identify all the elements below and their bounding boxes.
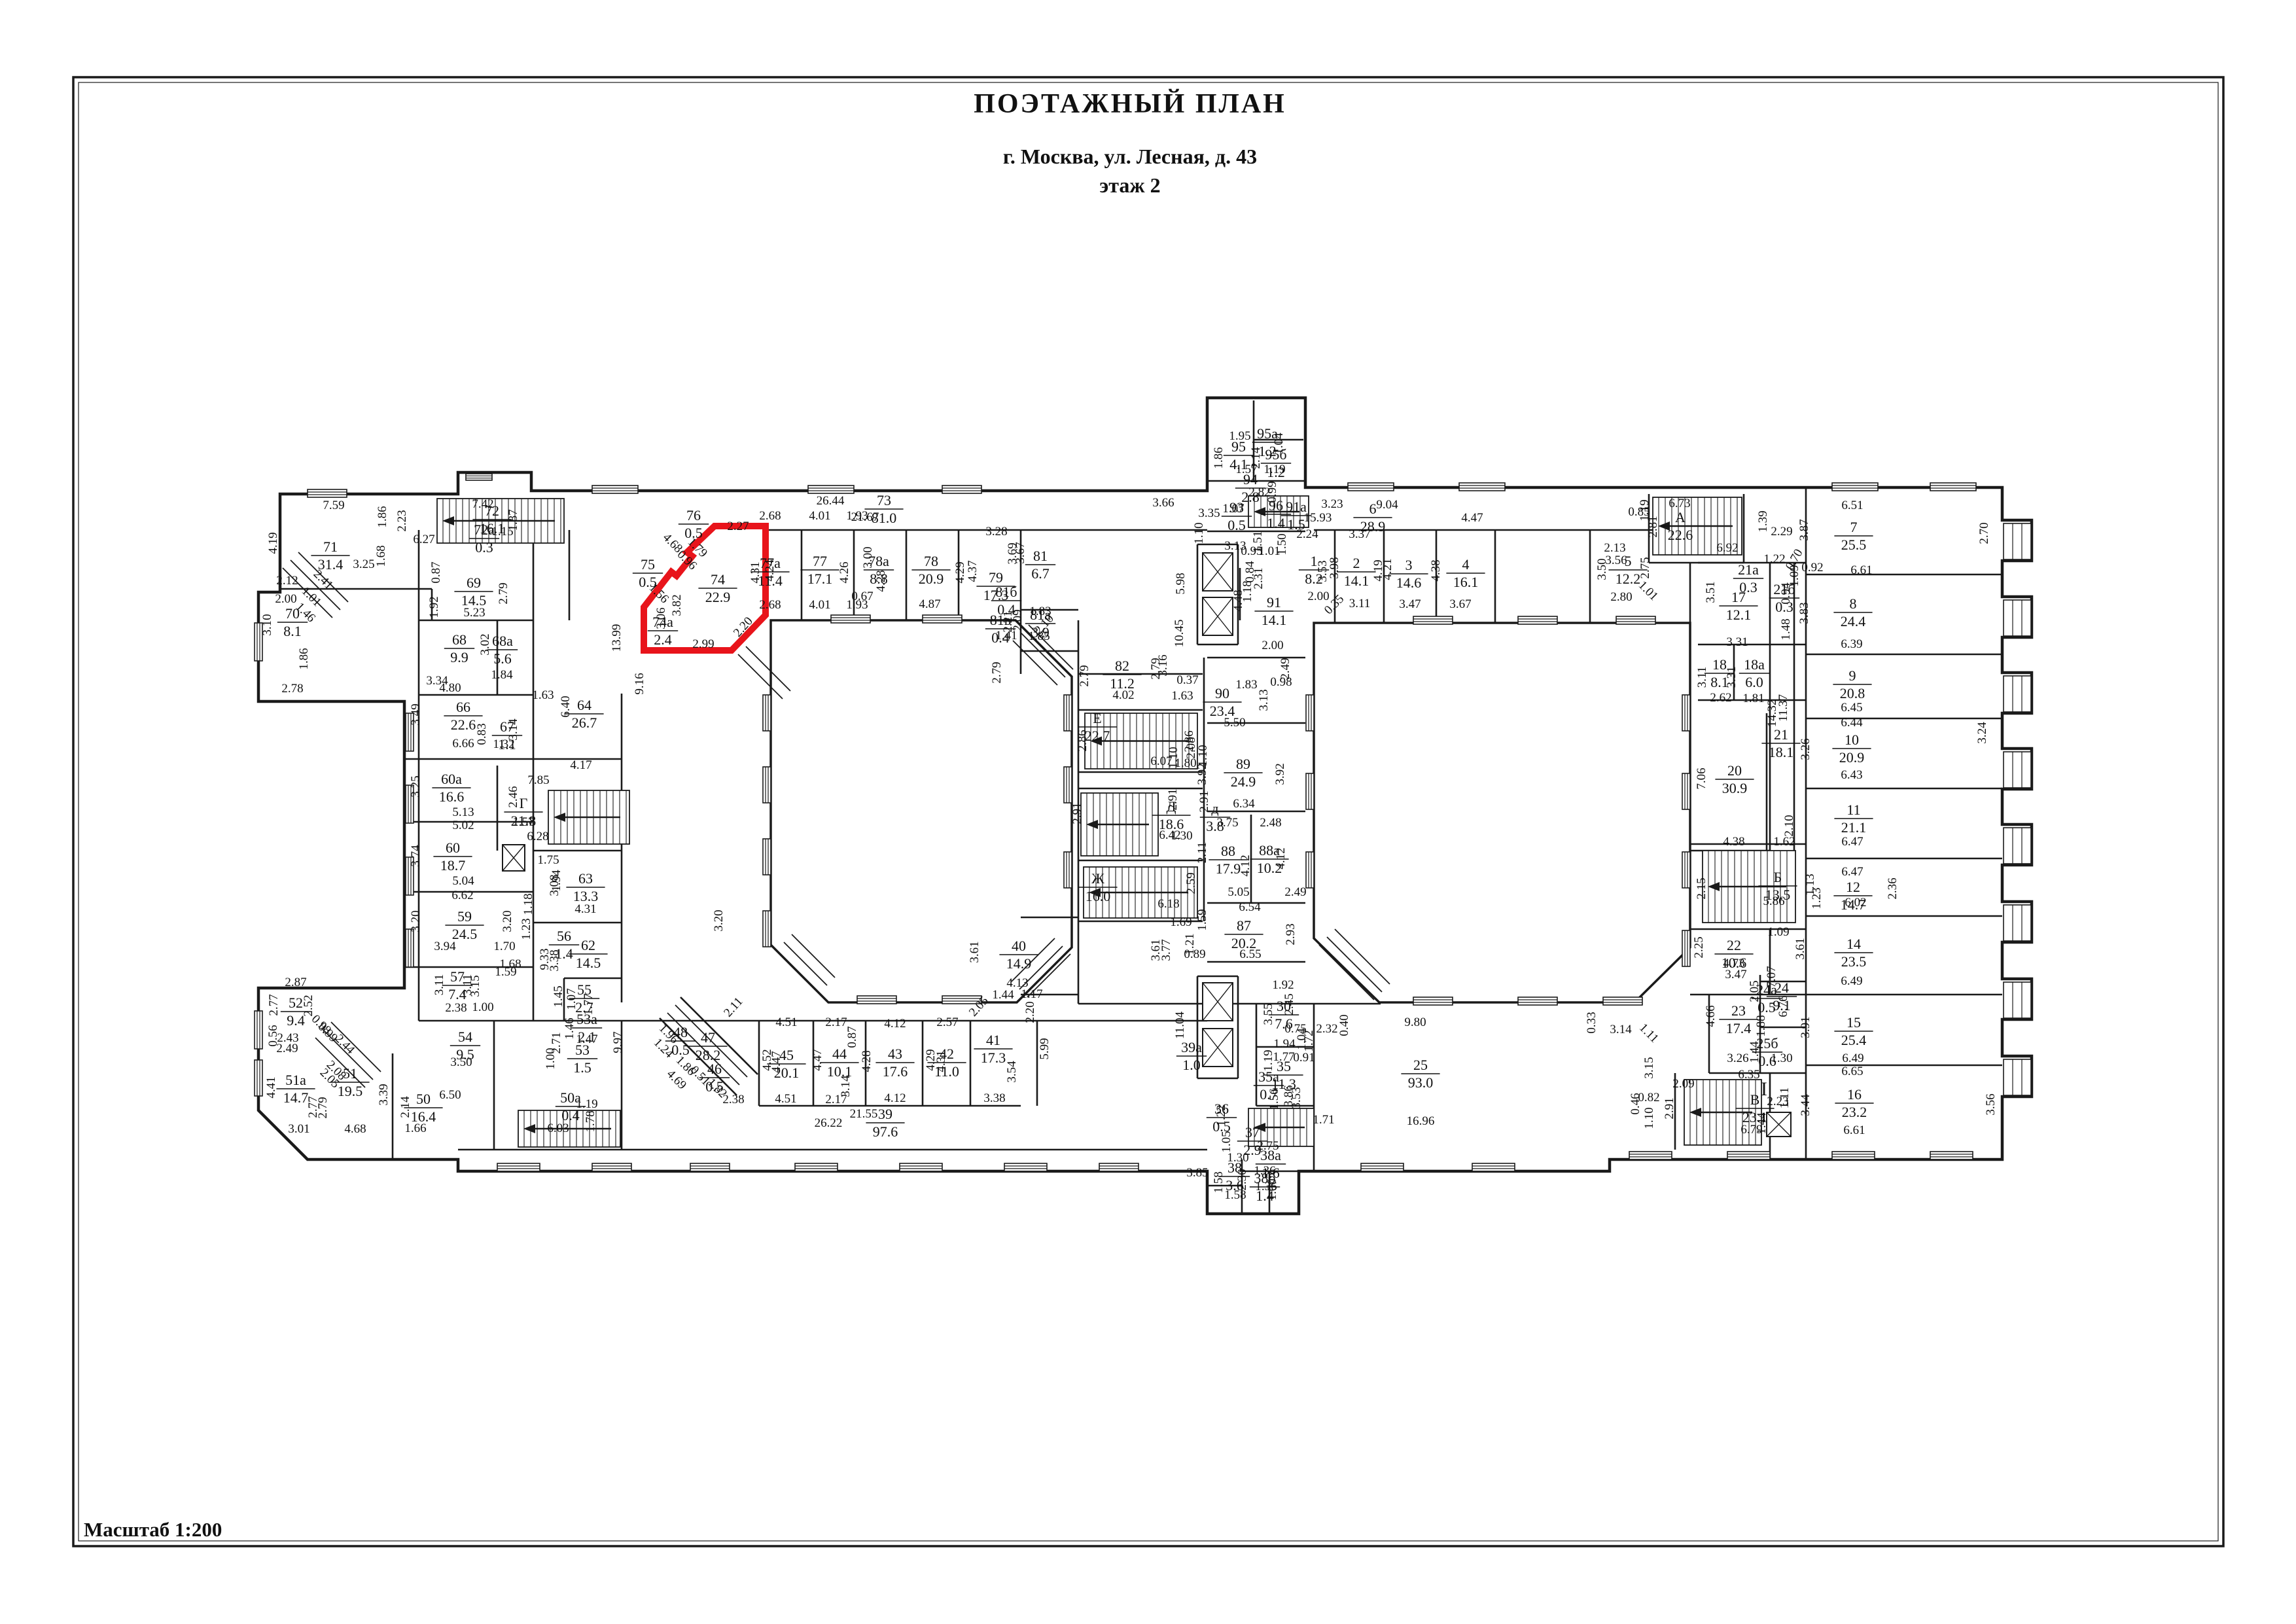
dimension-label: 2.27: [727, 520, 749, 533]
window-icon: [690, 1163, 730, 1171]
window-icon: [1413, 997, 1453, 1005]
dimension-label: 1.94: [1273, 1037, 1296, 1051]
window-icon: [1459, 483, 1505, 491]
elevator-icon: [1203, 1029, 1233, 1067]
svg-text:12: 12: [1846, 879, 1860, 895]
dimension-label: 3.14: [1610, 1023, 1632, 1036]
dimension-label: 3.25: [353, 557, 374, 571]
dimension-label: 6.61: [1843, 1123, 1865, 1137]
svg-text:20.8: 20.8: [1840, 685, 1865, 701]
window-icon: [1518, 616, 1557, 624]
window-icon: [1306, 695, 1314, 731]
svg-text:1.4: 1.4: [1267, 515, 1285, 531]
dimension-label: 3.85: [1186, 1166, 1208, 1180]
dimension-label: 6.49: [1841, 974, 1862, 988]
dimension-label: 1.22: [1214, 1104, 1228, 1126]
dimension-label: 2.52: [302, 995, 315, 1016]
dimension-label: 3.61: [968, 941, 981, 962]
svg-text:25.4: 25.4: [1841, 1032, 1867, 1048]
svg-text:2.4: 2.4: [654, 631, 672, 648]
dimension-label: 3.31: [1725, 666, 1739, 688]
svg-text:23: 23: [1731, 1002, 1746, 1019]
dimension-label: 6.35: [1738, 1068, 1759, 1082]
window-icon: [1727, 1152, 1770, 1159]
dimension-label: 0.89: [1184, 947, 1205, 961]
dimension-label: 3.28: [985, 525, 1007, 538]
dimension-label: 3.61: [1793, 938, 1807, 959]
svg-text:24.9: 24.9: [1231, 773, 1256, 790]
dimension-label: 1.00: [544, 1048, 557, 1069]
dimension-label: 6.79: [1740, 1123, 1762, 1137]
dimension-label: 2.79: [497, 582, 510, 604]
dimension-label: 2.24: [1296, 527, 1318, 541]
dimension-label: 6.27: [413, 533, 434, 546]
dimension-label: 3.87: [1797, 519, 1811, 540]
dimension-label: 1.36: [1254, 1164, 1275, 1178]
dimension-label: 4.26: [838, 561, 851, 583]
dimension-label: 0.46: [1629, 1093, 1642, 1114]
svg-text:20.9: 20.9: [919, 571, 944, 587]
svg-text:56: 56: [557, 928, 571, 944]
svg-text:40: 40: [1012, 938, 1026, 954]
dimension-label: 2.00: [275, 592, 296, 606]
floor-plan-page: ПОЭТАЖНЫЙ ПЛАН г. Москва, ул. Лесная, д.…: [0, 0, 2296, 1624]
dimension-label: 2.36: [1886, 877, 1899, 899]
window-icon: [255, 1060, 262, 1096]
dimension-label: 1.10: [1196, 745, 1210, 766]
elevator-icon: [503, 845, 525, 871]
window-icon: [1682, 695, 1690, 731]
elevator-icon: [1203, 553, 1233, 591]
dimension-label: 4.12: [1274, 847, 1288, 869]
dimension-label: 3.31: [1726, 635, 1748, 649]
dimension-label: 4.17: [570, 758, 592, 772]
dimension-label: 4.24: [763, 559, 777, 582]
svg-text:2: 2: [1353, 555, 1360, 571]
dimension-label: 6.47: [1841, 865, 1863, 879]
window-icon: [923, 615, 962, 623]
svg-text:4: 4: [1462, 556, 1470, 573]
dimension-label: 3.11: [433, 974, 446, 996]
dimension-label: 6.73: [1669, 497, 1690, 510]
dimension-label: 1.44: [992, 988, 1014, 1002]
svg-text:22: 22: [1727, 937, 1741, 953]
window-icon: [1682, 852, 1690, 888]
dimension-label: 3.50: [450, 1055, 472, 1069]
svg-text:17.4: 17.4: [1726, 1020, 1752, 1036]
dimension-label: 3.54: [1005, 1061, 1019, 1083]
svg-text:47: 47: [701, 1029, 715, 1046]
window-icon: [857, 996, 896, 1004]
svg-text:14.1: 14.1: [1262, 612, 1287, 628]
dimension-label: 6.43: [1841, 768, 1862, 782]
dimension-label: 2.93: [1284, 923, 1298, 945]
dimension-label: 3.47: [1725, 968, 1746, 981]
dimension-label: 1.59: [495, 965, 516, 979]
dimension-label: 3.75: [1216, 816, 1238, 830]
dimension-label: 1.57: [1235, 463, 1257, 476]
svg-text:9.9: 9.9: [450, 649, 468, 665]
svg-text:81: 81: [1033, 548, 1048, 564]
dimension-label: 26.22: [815, 1116, 843, 1130]
dimension-label: 2.45: [1282, 993, 1296, 1015]
dimension-label: 1.77: [1273, 1050, 1294, 1064]
dimension-label: 3.02: [478, 633, 492, 655]
svg-text:78: 78: [924, 553, 938, 569]
dimension-label: 9.97: [611, 1031, 625, 1053]
dimension-label: 4.21: [1381, 558, 1394, 580]
svg-text:10: 10: [1845, 732, 1859, 748]
svg-text:82: 82: [1115, 658, 1129, 674]
dimension-label: 1.30: [1771, 1051, 1792, 1065]
dimension-label: 7.59: [323, 499, 344, 512]
dimension-label: 1.11: [1778, 1087, 1792, 1109]
svg-text:17.1: 17.1: [807, 571, 833, 587]
dimension-label: 0.99: [1265, 481, 1279, 503]
svg-text:3: 3: [1405, 557, 1413, 573]
dimension-label: 2.78: [281, 682, 303, 696]
dimension-label: 3.39: [377, 1084, 391, 1105]
svg-text:39а: 39а: [1181, 1039, 1202, 1055]
svg-text:17.3: 17.3: [981, 1050, 1006, 1066]
page-address: г. Москва, ул. Лесная, д. 43: [1003, 145, 1257, 168]
dimension-label: 0.94: [1779, 582, 1793, 605]
svg-text:14.1: 14.1: [1344, 573, 1369, 589]
dimension-label: 2.17: [825, 1015, 847, 1029]
svg-text:44: 44: [832, 1046, 847, 1062]
dimension-label: 4.01: [809, 598, 830, 612]
dimension-label: 3.08: [548, 874, 561, 896]
svg-text:77: 77: [813, 553, 827, 569]
dimension-label: 1.22: [1763, 552, 1785, 566]
dimension-label: 2.59: [1184, 872, 1198, 894]
svg-text:23.2: 23.2: [1842, 1104, 1867, 1120]
dimension-label: 5.23: [463, 606, 485, 620]
dimension-label: 1.63: [1171, 689, 1193, 703]
dimension-label: 5.04: [452, 874, 474, 888]
dimension-label: 3.38: [548, 949, 561, 971]
dimension-label: 4.28: [860, 1050, 874, 1072]
dimension-label: 1.83: [1235, 678, 1257, 692]
dimension-label: 1.19: [576, 1097, 597, 1111]
dimension-label: 3.77: [1159, 939, 1173, 961]
dimension-label: 2.86: [1076, 730, 1089, 751]
svg-text:68: 68: [452, 631, 467, 648]
window-icon: [763, 695, 771, 731]
svg-text:52: 52: [289, 995, 303, 1011]
svg-text:88: 88: [1221, 843, 1235, 859]
dimension-label: 3.67: [1014, 542, 1027, 563]
dimension-label: 6.92: [1716, 541, 1738, 555]
dimension-label: 1.23: [1810, 887, 1824, 909]
dimension-label: 0.87: [429, 561, 443, 583]
window-icon: [255, 1011, 262, 1049]
dimension-label: 2.25: [1692, 936, 1706, 958]
svg-text:69: 69: [467, 574, 481, 591]
dimension-label: 2.48: [1260, 816, 1281, 830]
courtyard-2: [1314, 623, 1690, 1002]
svg-text:50: 50: [416, 1091, 431, 1107]
svg-text:81б: 81б: [995, 584, 1017, 600]
window-icon: [1930, 1152, 1973, 1159]
dimension-label: 3.01: [288, 1122, 309, 1136]
dimension-label: 6.51: [1841, 499, 1863, 512]
dimension-label: 1.23: [520, 918, 533, 940]
window-icon: [1472, 1163, 1515, 1171]
dimension-label: 1.30: [1227, 1151, 1248, 1165]
svg-text:64: 64: [577, 697, 592, 713]
svg-text:63: 63: [578, 870, 593, 887]
dimension-label: 2.38: [445, 1001, 467, 1015]
window-icon: [2004, 1059, 2031, 1095]
window-icon: [2004, 828, 2031, 864]
dimension-label: 3.11: [1695, 667, 1709, 688]
window-icon: [763, 767, 771, 803]
dimension-label: 3.26: [1727, 1051, 1748, 1065]
dimension-label: 6.61: [1850, 563, 1872, 577]
dimension-label: 1.58: [1224, 1188, 1246, 1202]
dimension-label: 1.58: [1212, 1171, 1226, 1193]
dimension-label: 4.38: [1723, 835, 1744, 849]
dimension-label: 6.18: [1157, 897, 1179, 911]
dimension-label: 1.92: [427, 596, 441, 618]
dimension-label: 6.76: [1776, 995, 1790, 1017]
dimension-label: 21.55: [850, 1107, 878, 1121]
window-icon: [795, 1163, 838, 1171]
dimension-label: 2.38: [722, 1093, 744, 1106]
dimension-label: 1.84: [491, 668, 513, 682]
window-icon: [1064, 852, 1072, 888]
dimension-label: 2.91: [1166, 788, 1180, 810]
dimension-label: 1.41: [995, 629, 1017, 643]
window-icon: [592, 485, 638, 493]
dimension-label: 3.06: [654, 607, 668, 629]
dimension-label: 4.02: [1112, 688, 1134, 702]
dimension-label: 3.55: [1262, 1003, 1275, 1025]
dimension-label: 3.13: [1257, 689, 1271, 711]
svg-text:74: 74: [711, 571, 725, 588]
dimension-label: 1.56: [1267, 1088, 1281, 1110]
dimension-label: 1.09: [1767, 925, 1789, 939]
window-icon: [1064, 695, 1072, 731]
dimension-label: 2.49: [276, 1042, 298, 1055]
courtyard-1: [771, 620, 1072, 1002]
dimension-label: 1.10: [1192, 522, 1206, 544]
dimension-label: 6.02: [1845, 896, 1866, 909]
plan-drawing: 7131.4708.17216.172а0.36914.5689.968а5.6…: [255, 398, 2032, 1214]
dimension-label: 1.77: [582, 993, 595, 1015]
svg-text:46: 46: [707, 1061, 722, 1077]
dimension-label: 6.40: [559, 696, 573, 717]
dimension-label: 2.68: [759, 598, 781, 612]
dimension-label: 4.12: [1239, 855, 1252, 876]
dimension-label: 0.33: [1585, 1012, 1598, 1033]
svg-text:0.5: 0.5: [1227, 517, 1246, 533]
dimension-label: 1.68: [374, 545, 388, 567]
dimension-label: 1.87: [506, 509, 520, 531]
window-icon: [1306, 773, 1314, 809]
window-icon: [2004, 676, 2031, 712]
svg-text:1.0: 1.0: [1182, 1057, 1201, 1073]
svg-text:20.9: 20.9: [1839, 749, 1865, 766]
dimension-label: 3.26: [1799, 738, 1812, 760]
svg-text:21: 21: [1774, 726, 1788, 743]
dimension-label: 2.09: [1011, 609, 1025, 631]
dimension-label: 3.94: [434, 940, 456, 953]
dimension-label: 2.00: [1262, 639, 1283, 652]
svg-text:22.6: 22.6: [1668, 527, 1693, 543]
svg-text:51а: 51а: [285, 1072, 306, 1088]
dimension-label: 2.75: [1638, 557, 1652, 578]
dimension-label: 1.93: [846, 509, 868, 523]
dimension-label: 9.04: [1376, 498, 1398, 512]
elevator-icon: [1203, 983, 1233, 1021]
window-icon: [406, 929, 414, 967]
svg-text:21.1: 21.1: [1841, 819, 1867, 836]
window-icon: [1099, 1163, 1139, 1171]
dimension-label: 0.92: [1801, 561, 1823, 574]
svg-text:17.9: 17.9: [1216, 860, 1241, 877]
svg-text:75: 75: [641, 556, 655, 573]
window-icon: [2004, 905, 2031, 941]
dimension-label: 5.02: [452, 819, 474, 832]
svg-text:25.5: 25.5: [1841, 537, 1867, 553]
svg-text:14.7: 14.7: [283, 1089, 309, 1106]
dimension-label: 1.04: [1272, 432, 1286, 455]
dimension-label: 2.91: [1663, 1097, 1676, 1119]
dimension-label: 5.50: [1224, 716, 1245, 730]
dimension-label: 4.19: [266, 532, 280, 554]
window-icon: [1348, 483, 1394, 491]
svg-text:Б: Б: [1774, 869, 1782, 885]
dimension-label: 3.20: [712, 909, 726, 931]
dimension-label: 4.87: [919, 597, 940, 611]
dimension-label: 0.67: [851, 590, 873, 603]
dimension-label: 3.15: [468, 975, 482, 997]
elevator-icon: [1203, 597, 1233, 635]
dimension-label: 3.56: [1984, 1093, 1998, 1115]
dimension-label: 4.38: [1429, 559, 1443, 581]
window-icon: [1361, 1163, 1404, 1171]
window-icon: [1832, 483, 1878, 491]
page-scale: Масштаб 1:200: [84, 1518, 222, 1541]
svg-text:12.2: 12.2: [1616, 571, 1641, 587]
dimension-label: 1.01: [1258, 544, 1280, 558]
dimension-label: 1.57: [512, 815, 534, 829]
svg-text:87: 87: [1237, 917, 1251, 934]
dimension-label: 3.14: [506, 718, 520, 741]
dimension-label: 1.95: [1229, 429, 1250, 443]
dimension-label: 6.54: [1239, 900, 1261, 914]
dimension-label: 3.74: [409, 845, 423, 867]
dimension-label: 2.12: [276, 574, 298, 588]
dimension-label: 2.11: [1195, 842, 1209, 864]
dimension-label: 6.07: [1150, 754, 1172, 768]
dimension-label: 1.78: [584, 1110, 597, 1132]
dimension-label: 1.05: [1220, 1131, 1233, 1152]
dimension-label: 2.62: [1710, 691, 1731, 705]
dimension-label: 6.44: [1841, 716, 1863, 730]
dimension-label: 0.85: [1628, 505, 1650, 519]
dimension-label: 1.17: [1021, 987, 1042, 1001]
dimension-label: 3.35: [1198, 506, 1220, 520]
dimension-label: 26.44: [817, 494, 845, 508]
svg-text:24.4: 24.4: [1841, 613, 1866, 629]
window-icon: [942, 485, 981, 493]
svg-text:0.3: 0.3: [475, 539, 493, 556]
dimension-label: 1.39: [1756, 510, 1770, 532]
dimension-label: 2.29: [1771, 525, 1792, 538]
dimension-label: 7.42: [472, 497, 493, 511]
dimension-label: 11.04: [1173, 1011, 1187, 1039]
dimension-label: 4.01: [809, 509, 830, 523]
dimension-label: 6.62: [451, 889, 473, 902]
svg-text:91: 91: [1267, 594, 1281, 610]
window-icon: [592, 1163, 631, 1171]
dimension-label: 4.48: [1231, 590, 1245, 611]
svg-text:6.0: 6.0: [1745, 674, 1763, 690]
staircase-icon: [548, 790, 629, 844]
dimension-label: 3.38: [983, 1091, 1005, 1105]
window-icon: [2004, 600, 2031, 636]
dimension-label: 2.91: [1197, 790, 1211, 812]
svg-text:97.6: 97.6: [873, 1123, 898, 1140]
dimension-label: 1.47: [576, 1033, 597, 1046]
dimension-label: 2.79: [1149, 658, 1163, 679]
dimension-label: 1.86: [1212, 447, 1226, 468]
dimension-label: 1.19: [1263, 463, 1285, 476]
dimension-label: 6.65: [1841, 1065, 1863, 1078]
dimension-label: 3.92: [1273, 763, 1287, 785]
dimension-label: 3.66: [1152, 496, 1174, 510]
dimension-label: 4.28: [874, 570, 888, 591]
dimension-label: 2.57: [936, 1015, 958, 1029]
dimension-label: 13.99: [610, 624, 624, 652]
dimension-label: 16.96: [1407, 1114, 1435, 1128]
dimension-label: 7.06: [1695, 768, 1708, 789]
svg-text:71: 71: [323, 538, 338, 555]
dimension-label: 4.29: [953, 561, 967, 583]
svg-text:18.7: 18.7: [440, 857, 466, 874]
dimension-label: 0.87: [845, 1026, 859, 1048]
dimension-label: 4.31: [934, 1050, 948, 1072]
dimension-label: 2.32: [1316, 1022, 1337, 1036]
window-icon: [1518, 997, 1557, 1005]
dimension-label: 5.13: [452, 805, 474, 819]
dimension-label: 2.70: [1977, 522, 1991, 544]
dimension-label: 7.85: [527, 773, 549, 787]
dimension-label: 7.07: [1765, 966, 1778, 987]
window-icon: [2004, 752, 2031, 788]
dimension-label: 1.75: [537, 853, 559, 867]
dimension-label: 2.20: [1023, 1001, 1037, 1023]
dimension-label: 1.00: [1265, 1178, 1279, 1200]
dimension-label: 4.47: [1461, 511, 1483, 525]
svg-text:Ж: Ж: [1091, 870, 1104, 887]
svg-text:8: 8: [1850, 595, 1857, 612]
dimension-label: 1.81: [1742, 692, 1764, 705]
dimension-label: 4.41: [264, 1076, 278, 1098]
svg-text:18.1: 18.1: [1769, 744, 1794, 760]
svg-text:0.3: 0.3: [1739, 579, 1757, 595]
page-floor: этаж 2: [1099, 173, 1160, 197]
dimension-label: 1.44: [1748, 1041, 1761, 1063]
svg-text:19.5: 19.5: [338, 1083, 363, 1099]
dimension-label: 0.98: [1270, 675, 1292, 689]
dimension-label: 1.92: [1272, 978, 1294, 992]
window-icon: [308, 489, 347, 497]
svg-text:16.0: 16.0: [1086, 888, 1111, 904]
